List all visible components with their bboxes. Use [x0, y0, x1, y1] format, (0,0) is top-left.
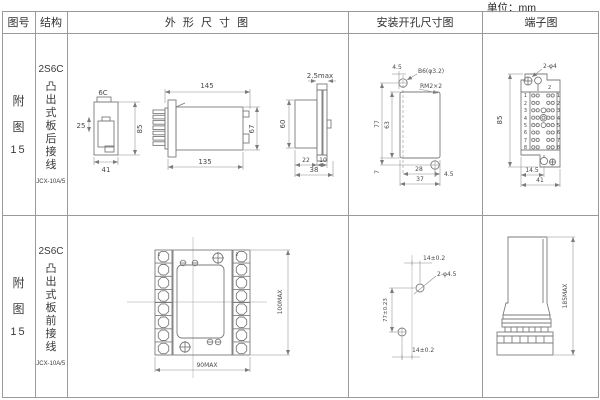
terminal-pin-grid	[532, 94, 555, 149]
dim-4-5-right-label: 4.5	[444, 171, 454, 178]
structure-cell-row2: 2S6C 凸出式板前接线 JCX-10A/5	[35, 215, 67, 397]
fig-number: 15	[10, 326, 26, 338]
header-structure: 结构	[35, 11, 67, 33]
dim-22-label: 22	[302, 157, 310, 164]
fig-char: 附	[12, 274, 24, 291]
pin-number: 3	[557, 108, 560, 114]
pin-number: 1	[557, 93, 560, 99]
pin-number: 3	[524, 108, 527, 114]
outline-drawing-row1: 6C 25 85 41	[67, 33, 348, 215]
dim-14-top-label: 14±0.2	[423, 255, 445, 262]
pin-number: 5	[557, 123, 560, 129]
dim-37-label: 37	[416, 176, 424, 183]
dim-2-5max-label: 2.5max	[307, 72, 333, 80]
mount-type-label: 凸出式板前接线	[45, 263, 58, 354]
relay-type-label: JCX-10A/5	[37, 360, 66, 367]
terminal-diagram-rear: 2-φ4 2 1 2 3 4 5	[496, 63, 560, 187]
model-label: 2S6C	[38, 246, 63, 257]
dim-145-label: 145	[200, 82, 213, 90]
terminal-cell-dividers	[155, 263, 250, 342]
pin-number: 7	[557, 138, 560, 144]
fig-number: 15	[10, 144, 26, 156]
side-view-drawing: 145 135 67	[153, 82, 260, 170]
fig-char: 图	[12, 118, 24, 135]
terminal-drawing-row2: 185MAX	[482, 215, 600, 397]
mount-type-label: 凸出式板后接线	[45, 81, 58, 172]
dim-38-label: 38	[310, 166, 319, 174]
dim-77-label: 77±0.23	[383, 298, 389, 322]
end-view-drawing: 6C 25 85 41	[77, 89, 144, 174]
dim-77-label: 77	[374, 120, 381, 128]
front-view-socket-drawing: 1 2 100MAX 90MAX	[127, 237, 290, 378]
dim-60-label: 60	[279, 120, 287, 129]
terminal-pin-numbers: 1 2 3 4 5 6 7 8 1 2 3 4 5 6 7 8	[524, 93, 560, 151]
dim-4-5-top-label: 4.5	[392, 64, 402, 71]
pin-number: 4	[557, 116, 560, 122]
unit-label: 单位：mm	[487, 0, 567, 11]
pin-number: 2	[557, 101, 560, 107]
socket-teeth	[511, 327, 541, 332]
dim-10-label: 10	[319, 157, 327, 164]
dim-135-label: 135	[198, 158, 211, 166]
datasheet-page: 单位：mm 图号 结构 外 形 尺 寸 图 安装开孔尺寸图 端子图 附 图 15…	[0, 0, 600, 400]
pin-number: 6	[524, 130, 527, 136]
header-mounting: 安装开孔尺寸图	[348, 11, 482, 33]
pin-number: 8	[524, 145, 527, 151]
pin-number: 5	[524, 123, 527, 129]
header-outline: 外 形 尺 寸 图	[67, 11, 348, 33]
dim-25-label: 25	[77, 122, 86, 130]
base-teeth	[504, 337, 544, 343]
structure-cell-row1: 2S6C 凸出式板后接线 JCX-10A/5	[35, 33, 67, 215]
mounting-drawing-row2: 14±0.2 2-φ4.5 77±0.23 14±0.2	[348, 215, 482, 397]
hole-size-label: 2-φ4.5	[437, 271, 457, 278]
pin-number: 1	[524, 93, 527, 99]
pin-number: 7	[524, 138, 527, 144]
corner-2-label: 2	[236, 252, 239, 258]
pin-number: 8	[557, 145, 560, 151]
fig-char: 附	[12, 92, 24, 109]
fig-char: 图	[12, 300, 24, 317]
dim-85-label: 85	[496, 116, 504, 125]
header-fig-no: 图号	[2, 11, 35, 33]
dim-14-5-label: 14.5	[525, 167, 539, 174]
side-view-assembly-drawing: 185MAX	[497, 237, 575, 355]
dim-90max-label: 90MAX	[196, 362, 217, 369]
pin-number: 4	[524, 116, 527, 122]
dim-67-label: 67	[248, 125, 256, 134]
dim-7-label: 7	[374, 170, 381, 174]
rear-view-drawing: 2.5max 60 22 10 38	[279, 72, 336, 177]
dim-14-bottom-label: 14±0.2	[412, 347, 434, 354]
dim-100max-label: 100MAX	[277, 290, 284, 315]
fig-cell-row2: 附 图 15	[2, 215, 35, 397]
dim-185max-label: 185MAX	[562, 284, 569, 309]
terminal-drawing-row1: 2-φ4 2 1 2 3 4 5	[482, 33, 600, 215]
screw-2-label: 2	[548, 85, 551, 91]
terminal-hole-label: 2-φ4	[543, 63, 557, 70]
model-label: 2S6C	[38, 64, 63, 75]
fig-cell-row1: 附 图 15	[2, 33, 35, 215]
relay-type-label: JCX-10A/5	[37, 178, 66, 185]
thread-size-label: RM2×2	[420, 83, 442, 90]
dim-41-label: 41	[102, 166, 111, 174]
dim-28-label: 28	[415, 166, 423, 173]
mounting-hole-drawing-front: 14±0.2 2-φ4.5 77±0.23 14±0.2	[383, 255, 457, 360]
pin-number: 2	[524, 101, 527, 107]
header-terminal: 端子图	[482, 11, 600, 33]
hole-size-label: B6(φ3.2)	[418, 68, 444, 75]
pin-number: 6	[557, 130, 560, 136]
dim-41-label: 41	[536, 177, 544, 184]
dim-63-label: 63	[384, 121, 391, 129]
dim-6c-label: 6C	[98, 89, 107, 97]
mounting-drawing-row1: 4.5 B6(φ3.2) RM2×2 77 63 7 28 4.5 37	[348, 33, 482, 215]
corner-1-label: 1	[158, 252, 161, 258]
mounting-hole-drawing-rear: 4.5 B6(φ3.2) RM2×2 77 63 7 28 4.5 37	[374, 64, 454, 186]
outline-drawing-row2: 1 2 100MAX 90MAX	[67, 215, 348, 397]
dim-85-label: 85	[136, 125, 144, 134]
